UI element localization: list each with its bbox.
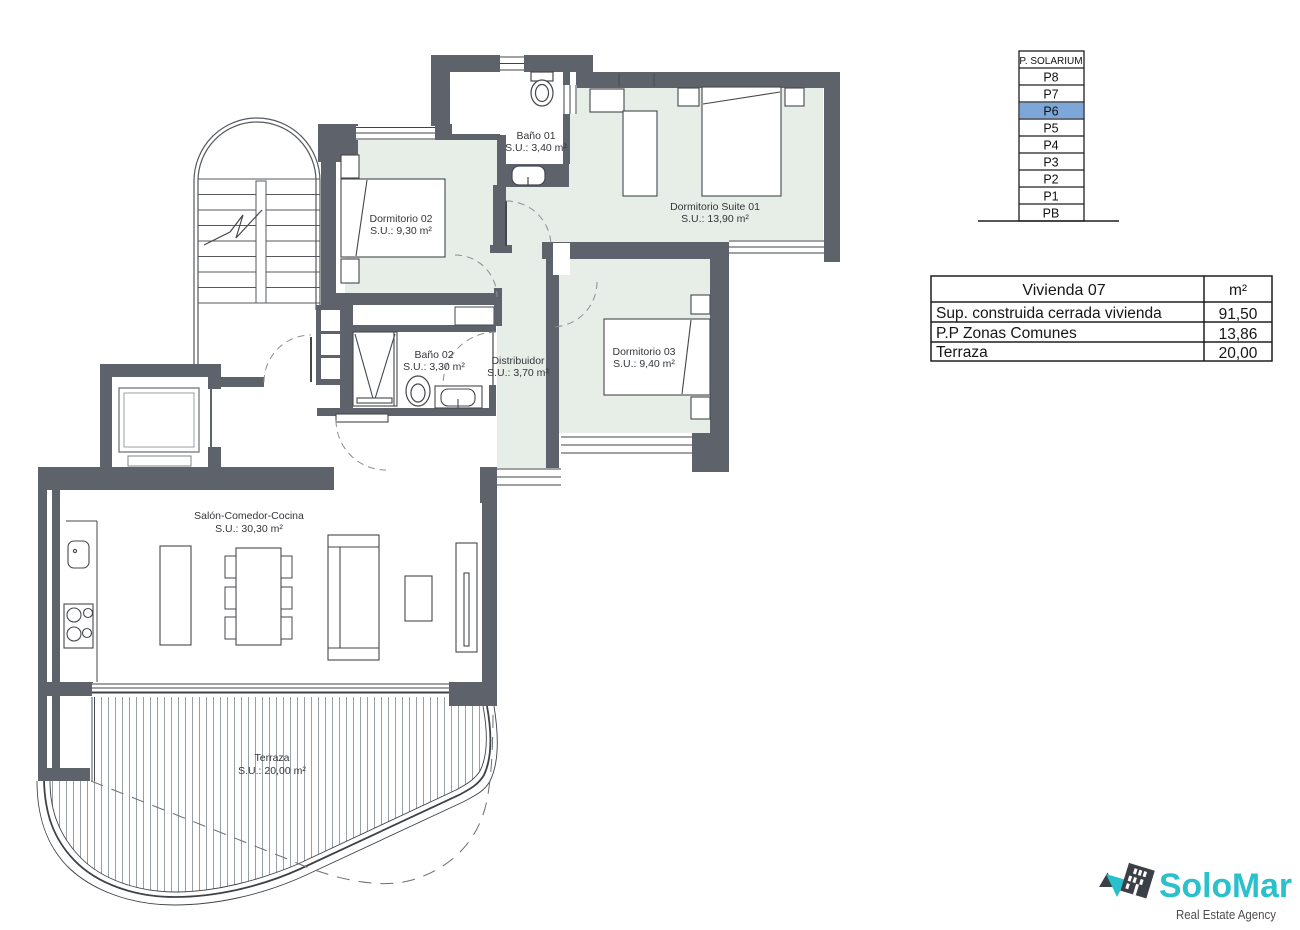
svg-text:Sup. construida cerrada vivien: Sup. construida cerrada vivienda [936, 305, 1162, 322]
svg-text:P4: P4 [1043, 139, 1058, 153]
svg-text:P8: P8 [1043, 71, 1058, 85]
svg-text:S.U.: 13,90 m²: S.U.: 13,90 m² [681, 213, 749, 225]
svg-text:Dormitorio 02: Dormitorio 02 [369, 213, 432, 225]
svg-text:S.U.: 3,40 m²: S.U.: 3,40 m² [505, 142, 567, 154]
svg-text:Vivienda 07: Vivienda 07 [1022, 282, 1105, 299]
svg-text:P1: P1 [1043, 190, 1058, 204]
svg-text:Baño 01: Baño 01 [516, 130, 555, 142]
svg-text:P7: P7 [1043, 88, 1058, 102]
svg-text:Terraza: Terraza [936, 344, 988, 361]
svg-text:S.U.: 30,30 m²: S.U.: 30,30 m² [215, 523, 283, 535]
svg-text:S.U.: 3,30 m²: S.U.: 3,30 m² [403, 361, 465, 373]
svg-text:P6: P6 [1043, 105, 1058, 119]
svg-text:Real Estate Agency: Real Estate Agency [1176, 907, 1276, 922]
svg-text:m²: m² [1229, 282, 1247, 299]
svg-text:P3: P3 [1043, 156, 1058, 170]
svg-text:SoloMar: SoloMar [1159, 867, 1292, 905]
svg-text:P2: P2 [1043, 173, 1058, 187]
svg-text:S.U.: 3,70 m²: S.U.: 3,70 m² [487, 367, 549, 379]
svg-text:Baño 02: Baño 02 [414, 349, 453, 361]
svg-text:Terraza: Terraza [254, 752, 289, 764]
svg-text:Salón-Comedor-Cocina: Salón-Comedor-Cocina [194, 510, 304, 522]
svg-text:20,00: 20,00 [1219, 345, 1258, 362]
svg-text:PB: PB [1043, 207, 1060, 221]
svg-text:P5: P5 [1043, 122, 1058, 136]
svg-text:Dormitorio Suite 01: Dormitorio Suite 01 [670, 201, 760, 213]
svg-text:Distribuidor: Distribuidor [491, 355, 545, 367]
svg-text:S.U.: 9,30 m²: S.U.: 9,30 m² [370, 225, 432, 237]
svg-text:P. SOLARIUM: P. SOLARIUM [1019, 56, 1082, 67]
svg-text:Dormitorio 03: Dormitorio 03 [612, 346, 675, 358]
svg-text:S.U.: 9,40 m²: S.U.: 9,40 m² [613, 358, 675, 370]
svg-text:S.U.: 20,00 m²: S.U.: 20,00 m² [238, 765, 306, 777]
svg-text:91,50: 91,50 [1219, 306, 1258, 323]
svg-text:13,86: 13,86 [1219, 326, 1258, 343]
svg-text:P.P Zonas Comunes: P.P Zonas Comunes [936, 325, 1077, 342]
